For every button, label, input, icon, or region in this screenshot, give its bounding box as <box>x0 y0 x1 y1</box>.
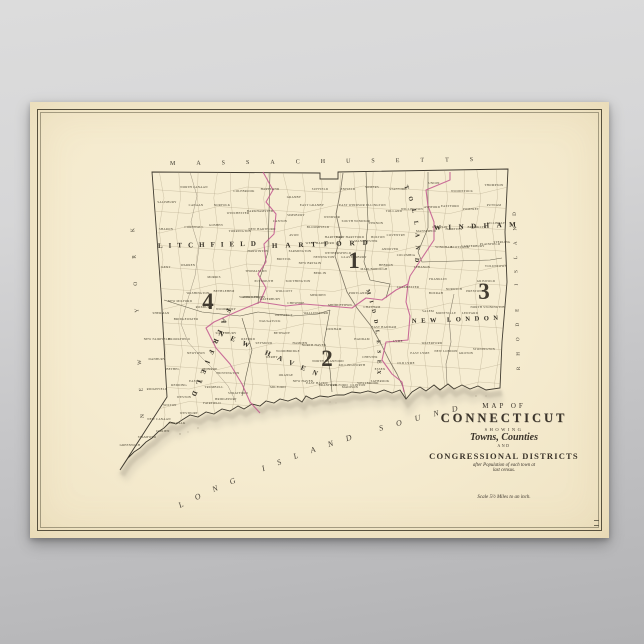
district-number: 3 <box>478 279 490 304</box>
town-label: TRUMBULL <box>204 385 223 389</box>
town-label: PUTNAM <box>487 203 502 207</box>
town-label: TORRINGTON <box>229 229 252 233</box>
new-york-label: NEW YORK <box>129 205 146 418</box>
title-note-line2: last census. <box>418 468 590 473</box>
map-poster: SALISBURYNORTH CANAANCANAANNORFOLKCOLEBR… <box>30 102 609 538</box>
photo-background: SALISBURYNORTH CANAANCANAANNORFOLKCOLEBR… <box>0 0 644 644</box>
title-congressional-districts: CONGRESSIONAL DISTRICTS <box>418 451 590 461</box>
town-label: WINDSOR <box>324 215 341 219</box>
town-label: NORWALK <box>168 421 186 425</box>
town-label: NORTH STONINGTON <box>470 305 506 309</box>
town-label: SALEM <box>422 309 434 313</box>
town-label: CANTON <box>273 219 288 223</box>
town-label: EASTFORD <box>441 204 460 208</box>
town-label: SIMSBURY <box>287 213 305 217</box>
title-and: AND <box>418 443 590 448</box>
town-label: ANDOVER <box>382 247 400 251</box>
town-label: BROOKFIELD <box>168 337 191 341</box>
town-label: NEWTOWN <box>187 351 206 355</box>
town-label: MADISON <box>342 385 359 389</box>
town-label: MERIDEN <box>310 293 326 297</box>
town-label: COLEBROOK <box>233 189 255 193</box>
town-label: FARMINGTON <box>289 249 312 253</box>
town-label: NORTH CANAAN <box>180 185 208 189</box>
district-number: 4 <box>202 289 214 314</box>
town-label: LYME <box>393 339 402 343</box>
title-state: CONNECTICUT <box>418 411 590 426</box>
town-label: EAST WINDSOR <box>339 203 366 207</box>
town-label: MIDDLEBURY <box>243 295 266 299</box>
town-label: BRISTOL <box>277 257 292 261</box>
town-label: SHERMAN <box>153 311 170 315</box>
town-label: COLCHESTER <box>397 285 420 289</box>
town-label: WATERFORD <box>422 341 443 345</box>
town-label: BOLTON <box>371 235 385 239</box>
town-label: KENT <box>161 265 170 269</box>
town-label: COVENTRY <box>387 233 406 237</box>
town-label: NEW FAIRFIELD <box>144 337 171 341</box>
town-label: NEW MILFORD <box>168 299 193 303</box>
town-label: SHARON <box>159 227 174 231</box>
town-label: GREENWICH <box>120 443 141 447</box>
town-label: SOMERS <box>365 185 379 189</box>
town-label: CANAAN <box>189 203 204 207</box>
town-label: MORRIS <box>207 275 220 279</box>
town-label: BOZRAH <box>429 291 444 295</box>
town-label: DANBURY <box>149 357 166 361</box>
town-label: GRANBY <box>287 195 302 199</box>
town-label: BLOOMFIELD <box>307 225 330 229</box>
town-label: HEBRON <box>379 263 394 267</box>
town-label: SUFFIELD <box>312 187 329 191</box>
town-label: KILLINGWORTH <box>339 363 366 367</box>
town-label: BETHLEHEM <box>214 289 235 293</box>
town-label: MONTVILLE <box>436 311 456 315</box>
town-label: GOSHEN <box>209 223 224 227</box>
town-label: THOMPSON <box>484 183 504 187</box>
town-label: PROSPECT <box>275 313 292 317</box>
town-label: VOLUNTOWN <box>485 264 508 268</box>
town-label: BETHANY <box>274 331 291 335</box>
town-label: WOODSTOCK <box>451 189 473 193</box>
town-label: HUNTINGTON <box>217 371 240 375</box>
town-label: NORFOLK <box>214 203 231 207</box>
town-label: BRIDGEPORT <box>215 397 237 401</box>
town-label: BRIDGEWATER <box>174 317 199 321</box>
town-label: ELLINGTON <box>366 203 386 207</box>
town-label: MILFORD <box>270 385 286 389</box>
town-label: BERLIN <box>314 271 327 275</box>
town-label: FAIRFIELD <box>203 401 221 405</box>
town-label: AVON <box>289 233 299 237</box>
town-label: SOUTHINGTON <box>286 279 311 283</box>
town-label: ASHFORD <box>424 205 441 209</box>
town-label: NEW LONDON <box>434 349 458 353</box>
town-label: LEDYARD <box>462 311 479 315</box>
town-label: NEW HARTFORD <box>248 227 276 231</box>
town-label: WESTPORT <box>180 411 198 415</box>
town-label: THOMASTON <box>245 269 267 273</box>
town-label: MARLBOROUGH <box>361 267 389 271</box>
town-label: STONINGTON <box>473 347 496 351</box>
town-label: WILTON <box>163 403 177 407</box>
plate-mark <box>594 520 599 526</box>
town-label: EAST LYME <box>410 351 429 355</box>
massachusetts-label: MASSACHUSETTS <box>170 157 494 167</box>
town-label: BETHEL <box>166 367 179 371</box>
town-label: WALLINGFORD <box>303 311 329 315</box>
district-number: 2 <box>321 346 333 371</box>
title-towns-counties: Towns, Counties <box>418 432 590 443</box>
town-label: POMFRET <box>463 207 479 211</box>
town-label: HARWINTON <box>247 249 269 253</box>
town-label: REDDING <box>171 383 187 387</box>
town-label: NAUGATUCK <box>259 319 281 323</box>
town-label: ENFIELD <box>341 187 356 191</box>
town-label: RIDGEFIELD <box>147 387 168 391</box>
town-label: DURHAM <box>326 327 341 331</box>
town-label: WOLCOTT <box>276 289 293 293</box>
town-label: HARTLAND <box>261 187 280 191</box>
town-label: BARKHAMSTED <box>247 209 274 213</box>
town-label: MIDDLETOWN <box>328 303 352 307</box>
town-label: VERNON <box>369 221 384 225</box>
town-label: CORNWALL <box>184 225 203 229</box>
town-label: SOUTH WINDSOR <box>342 219 371 223</box>
town-label: STAMFORD <box>138 435 157 439</box>
town-label: CHESHIRE <box>287 301 304 305</box>
town-label: WARREN <box>181 263 196 267</box>
town-label: ORANGE <box>279 373 293 377</box>
town-label: SALISBURY <box>157 200 177 204</box>
town-label: OLD LYME <box>397 361 415 365</box>
town-label: UNION <box>428 181 440 185</box>
town-label: GROTON <box>459 351 474 355</box>
town-label: PLYMOUTH <box>255 279 274 283</box>
town-label: NORWICH <box>446 287 463 291</box>
district-number: 1 <box>348 248 360 273</box>
town-label: DARIEN <box>156 429 170 433</box>
town-label: NEW BRITAIN <box>299 261 322 265</box>
town-label: NEWINGTON <box>313 255 335 259</box>
town-label: WOODBRIDGE <box>276 349 300 353</box>
title-map-of: MAP OF <box>418 402 590 410</box>
town-label: STRATFORD <box>228 391 248 395</box>
town-label: HADDAM <box>354 337 369 341</box>
town-label: STERLING <box>494 240 511 244</box>
town-label: SEYMOUR <box>256 341 274 345</box>
title-scale: Scale 5½ Miles to an inch. <box>418 495 590 500</box>
title-block: MAP OF CONNECTICUT SHOWING Towns, Counti… <box>418 402 590 500</box>
town-label: EAST GRANBY <box>300 203 325 207</box>
town-label: FRANKLIN <box>429 277 447 281</box>
town-label: COLUMBIA <box>397 253 416 257</box>
